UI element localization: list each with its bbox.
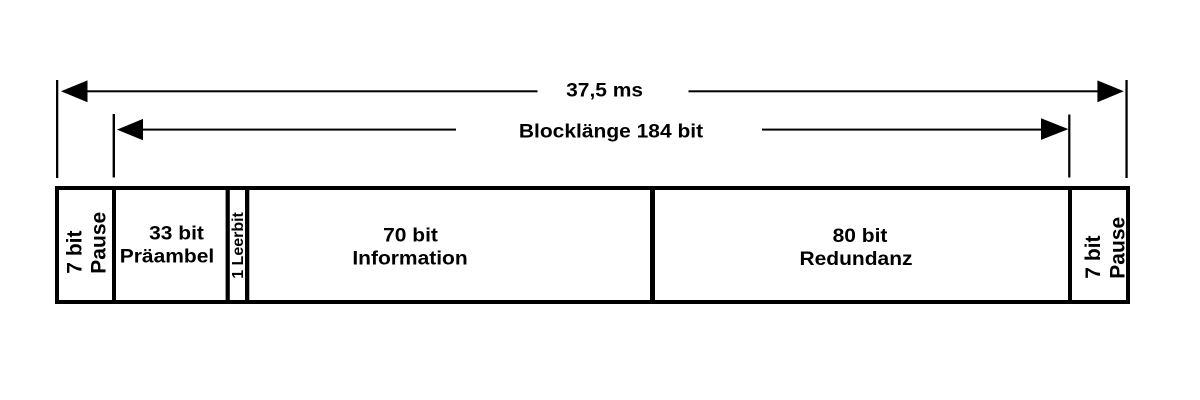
svg-text:80 bit: 80 bit xyxy=(833,226,888,247)
svg-text:70 bit: 70 bit xyxy=(383,225,438,246)
svg-text:7 bit: 7 bit xyxy=(1082,236,1105,279)
svg-text:Information: Information xyxy=(352,248,467,269)
svg-text:Pause: Pause xyxy=(1106,217,1129,279)
svg-text:37,5 ms: 37,5 ms xyxy=(566,80,643,101)
svg-text:33 bit: 33 bit xyxy=(149,223,204,244)
svg-text:Präambel: Präambel xyxy=(120,246,214,267)
svg-text:7 bit: 7 bit xyxy=(63,231,86,274)
svg-text:1 Leerbit: 1 Leerbit xyxy=(230,211,247,278)
svg-text:Pause: Pause xyxy=(88,212,111,274)
svg-text:Redundanz: Redundanz xyxy=(799,249,912,270)
svg-text:Blocklänge 184 bit: Blocklänge 184 bit xyxy=(519,121,704,142)
